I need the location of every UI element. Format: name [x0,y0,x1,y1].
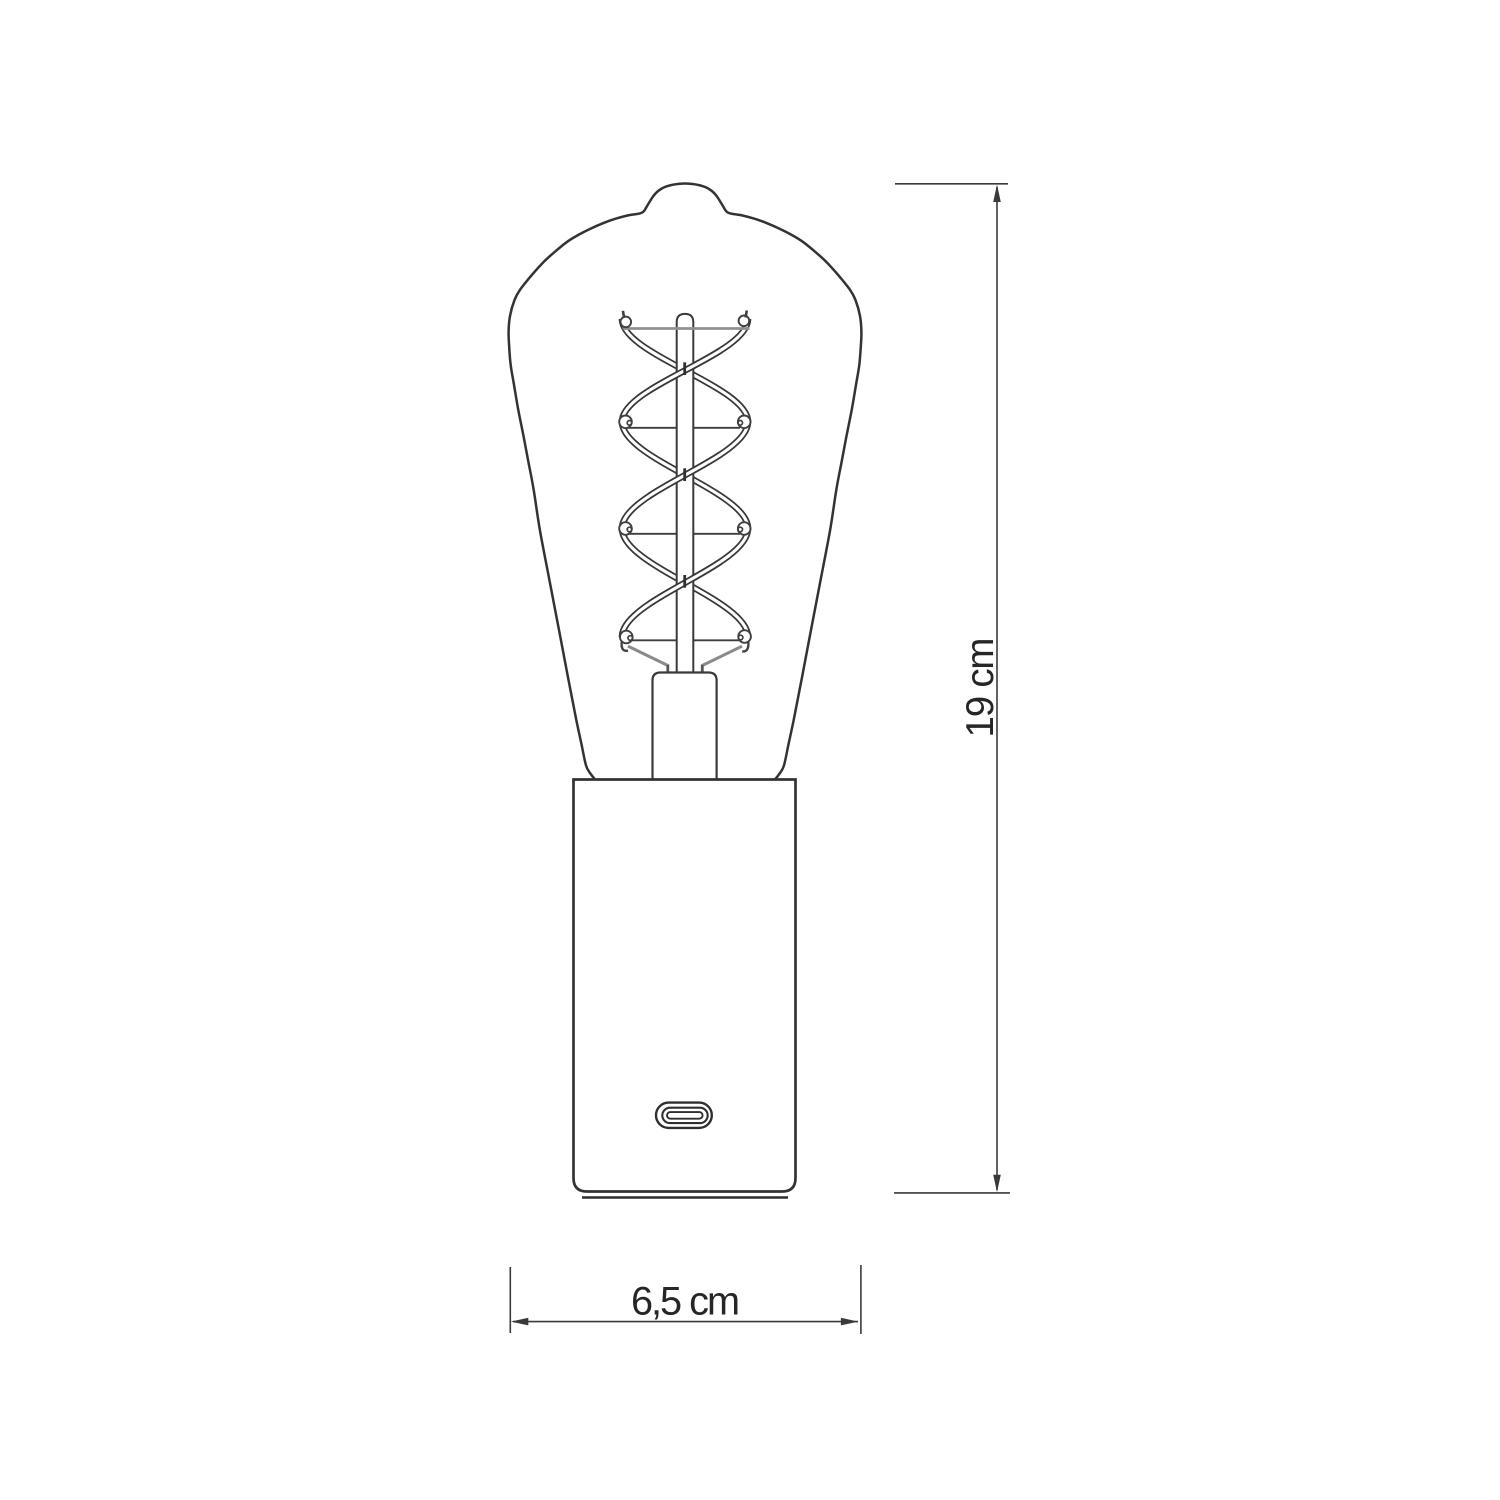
svg-text:19 cm: 19 cm [959,638,1002,738]
svg-text:6,5 cm: 6,5 cm [631,1279,740,1323]
